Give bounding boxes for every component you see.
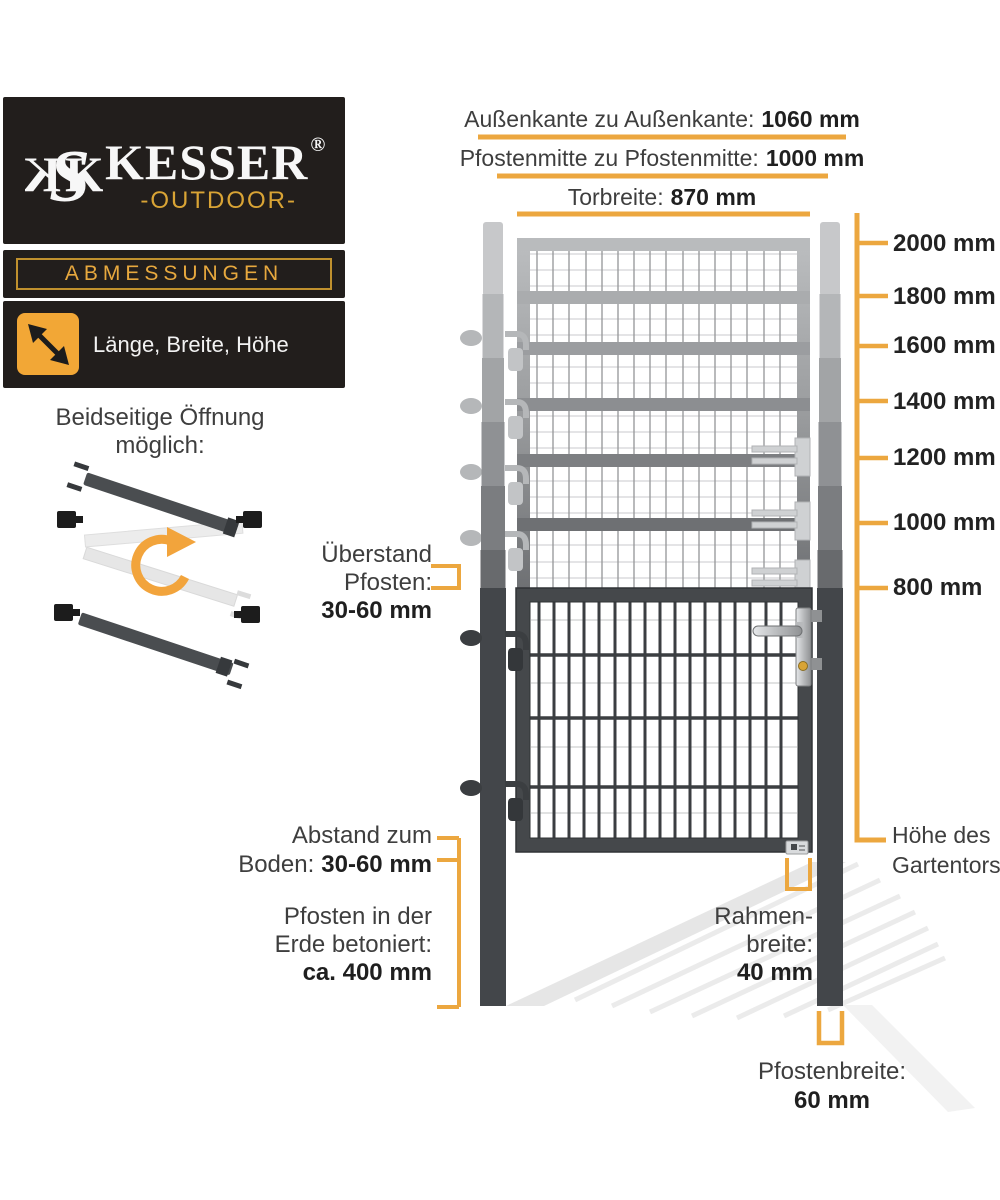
left-post — [480, 222, 506, 1006]
height-tick-800: 800 mm — [893, 574, 982, 602]
dimensions-legend-panel: Länge, Breite, Höhe — [3, 301, 345, 388]
callout-pfostenbreite: Pfostenbreite: 60 mm — [692, 1057, 972, 1115]
section-title-panel: ABMESSUNGEN — [3, 250, 345, 298]
pfostenbreite-bracket — [819, 1011, 842, 1043]
callout-ueberstand: Überstand Pfosten: 30-60 mm — [182, 541, 432, 625]
height-axis-label: Höhe des Gartentors — [892, 820, 1000, 880]
registered-mark: ® — [310, 134, 326, 156]
opening-note: Beidseitige Öffnung möglich: — [25, 404, 295, 460]
section-title: ABMESSUNGEN — [3, 250, 345, 298]
callout-betoniert: Pfosten in der Erde betoniert: ca. 400 m… — [150, 903, 432, 987]
svg-text:K: K — [65, 146, 103, 202]
ghost-gate-frames — [517, 238, 810, 590]
kesser-monogram-icon: K S K — [25, 115, 103, 219]
callout-abstand: Abstand zum Boden:30-60 mm — [150, 821, 432, 879]
dim-post-center: Pfostenmitte zu Pfostenmitte:1000 mm — [412, 145, 912, 172]
height-tick-2000: 2000 mm — [893, 230, 996, 258]
height-tick-1000: 1000 mm — [893, 509, 996, 537]
callout-rahmenbreite: Rahmen- breite: 40 mm — [653, 903, 813, 987]
ueberstand-bracket — [431, 566, 459, 588]
height-tick-1200: 1200 mm — [893, 444, 996, 472]
height-tick-1400: 1400 mm — [893, 388, 996, 416]
brand-name: KESSER® — [105, 133, 326, 191]
dim-outer-edge: Außenkante zu Außenkante:1060 mm — [412, 106, 912, 133]
gate-mesh — [530, 602, 798, 838]
gate-dimensions-infographic: K S K KESSER® -OUTDOOR- ABMESSUNGEN Läng… — [0, 0, 1000, 1200]
gate-brand-plate — [786, 841, 808, 854]
height-ruler — [857, 213, 888, 840]
dimensions-caption: Länge, Breite, Höhe — [93, 301, 341, 388]
height-tick-1800: 1800 mm — [893, 283, 996, 311]
gate — [460, 588, 822, 854]
brand-subtitle: -OUTDOOR- — [140, 187, 297, 215]
diagonal-arrows-icon — [17, 313, 79, 375]
height-tick-1600: 1600 mm — [893, 332, 996, 360]
brand-panel: K S K KESSER® -OUTDOOR- — [3, 97, 345, 244]
dim-gate-width: Torbreite:870 mm — [412, 184, 912, 211]
abstand-betoniert-bracket — [437, 838, 459, 1007]
